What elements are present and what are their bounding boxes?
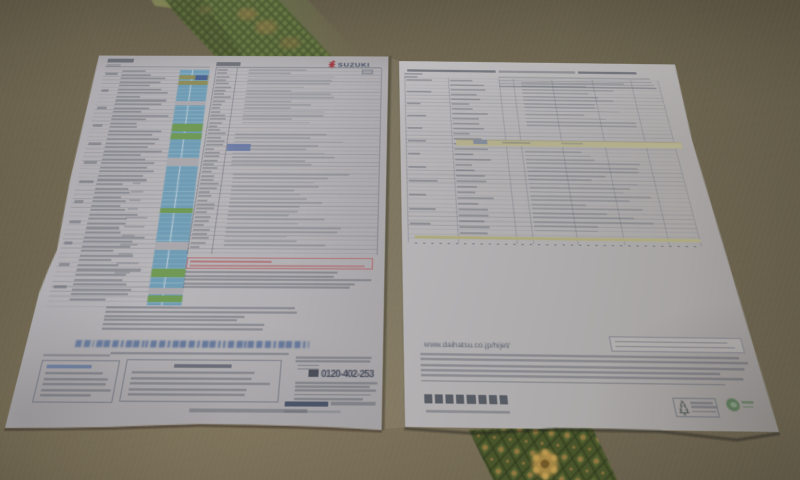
svg-text:SUZUKI: SUZUKI	[337, 62, 369, 68]
